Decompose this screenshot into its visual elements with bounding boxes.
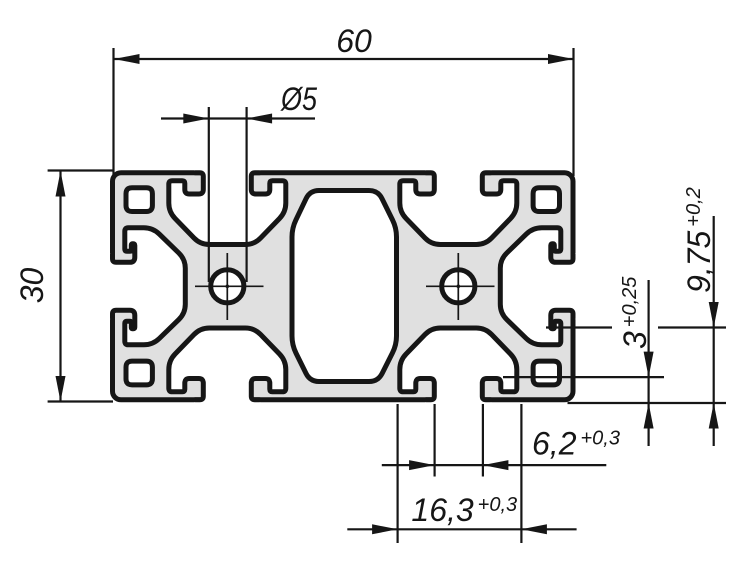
svg-text:60: 60 [336,23,372,59]
svg-text:Ø5: Ø5 [280,81,317,117]
svg-text:30: 30 [14,268,50,304]
